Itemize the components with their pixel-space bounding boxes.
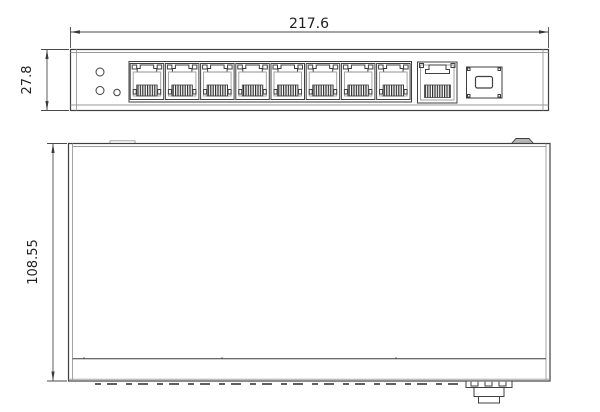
rj45-port-block xyxy=(129,62,412,103)
top-view: 108.55 xyxy=(26,139,550,404)
led-indicator xyxy=(96,68,104,76)
led-indicators xyxy=(96,68,120,96)
chassis-body xyxy=(69,144,551,382)
dim-depth-label: 108.55 xyxy=(26,239,41,285)
dimension-front-height: 27.8 xyxy=(20,50,69,111)
rj45-port xyxy=(377,64,411,100)
rj45-port xyxy=(236,64,269,100)
rj45-port xyxy=(341,64,375,100)
dim-width-label: 217.6 xyxy=(289,16,329,32)
sfp-module-protrusion xyxy=(466,381,512,403)
front-view: 217.6 27.8 xyxy=(20,16,549,111)
chassis-outline xyxy=(69,144,551,382)
dim-front-height-label: 27.8 xyxy=(20,66,35,95)
dimension-drawing-canvas: 217.6 27.8 xyxy=(0,0,600,412)
led-indicator xyxy=(114,89,120,95)
rj45-port xyxy=(271,64,305,100)
ground-lug xyxy=(512,139,534,144)
rj45-port xyxy=(130,64,164,100)
dimension-width: 217.6 xyxy=(71,16,549,48)
uplink-rj45-port xyxy=(418,62,458,103)
sfp-port xyxy=(467,67,503,98)
rj45-port xyxy=(165,64,199,100)
dimension-depth: 108.55 xyxy=(26,144,67,382)
switch-dimension-drawing: 217.6 27.8 xyxy=(0,0,600,412)
rj45-port xyxy=(201,64,235,100)
rj45-port xyxy=(306,64,340,100)
led-indicator xyxy=(96,87,104,95)
